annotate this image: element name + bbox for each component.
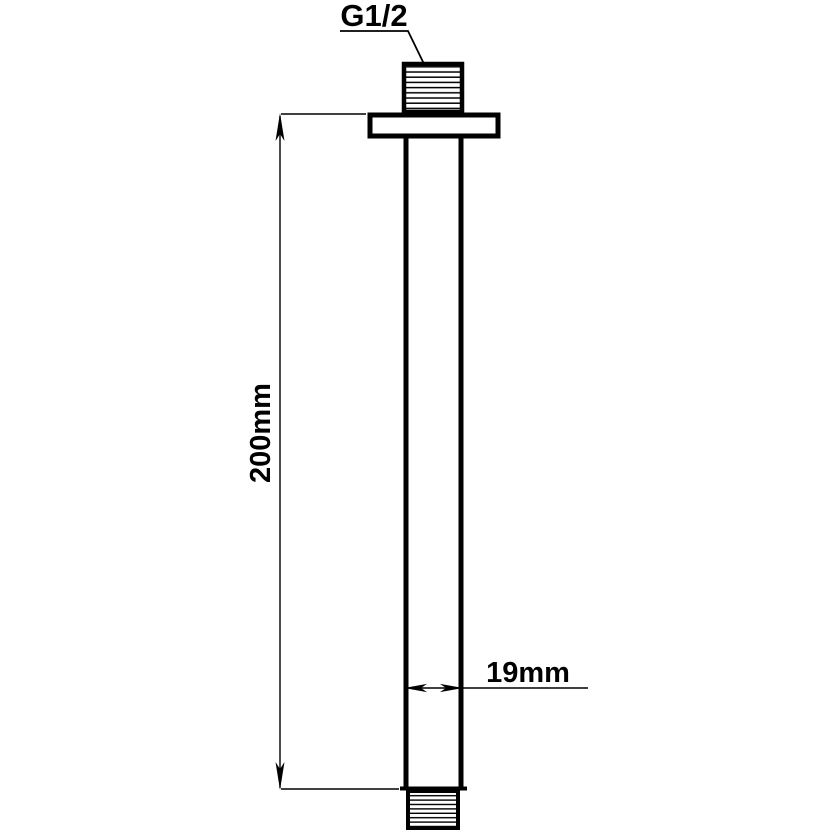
length-dimension-label: 200mm bbox=[245, 383, 277, 483]
flange-plate bbox=[370, 115, 498, 136]
shower-arm-dimension-drawing: G1/2 200mm 19mm bbox=[0, 0, 834, 834]
technical-drawing-page: G1/2 200mm 19mm bbox=[0, 0, 834, 834]
diameter-dimension-label: 19mm bbox=[486, 657, 570, 689]
thread-size-label: G1/2 bbox=[340, 0, 407, 33]
thread-label-leader-line bbox=[340, 31, 425, 66]
bottom-thread-section bbox=[408, 791, 458, 828]
top-thread-section bbox=[404, 64, 462, 112]
